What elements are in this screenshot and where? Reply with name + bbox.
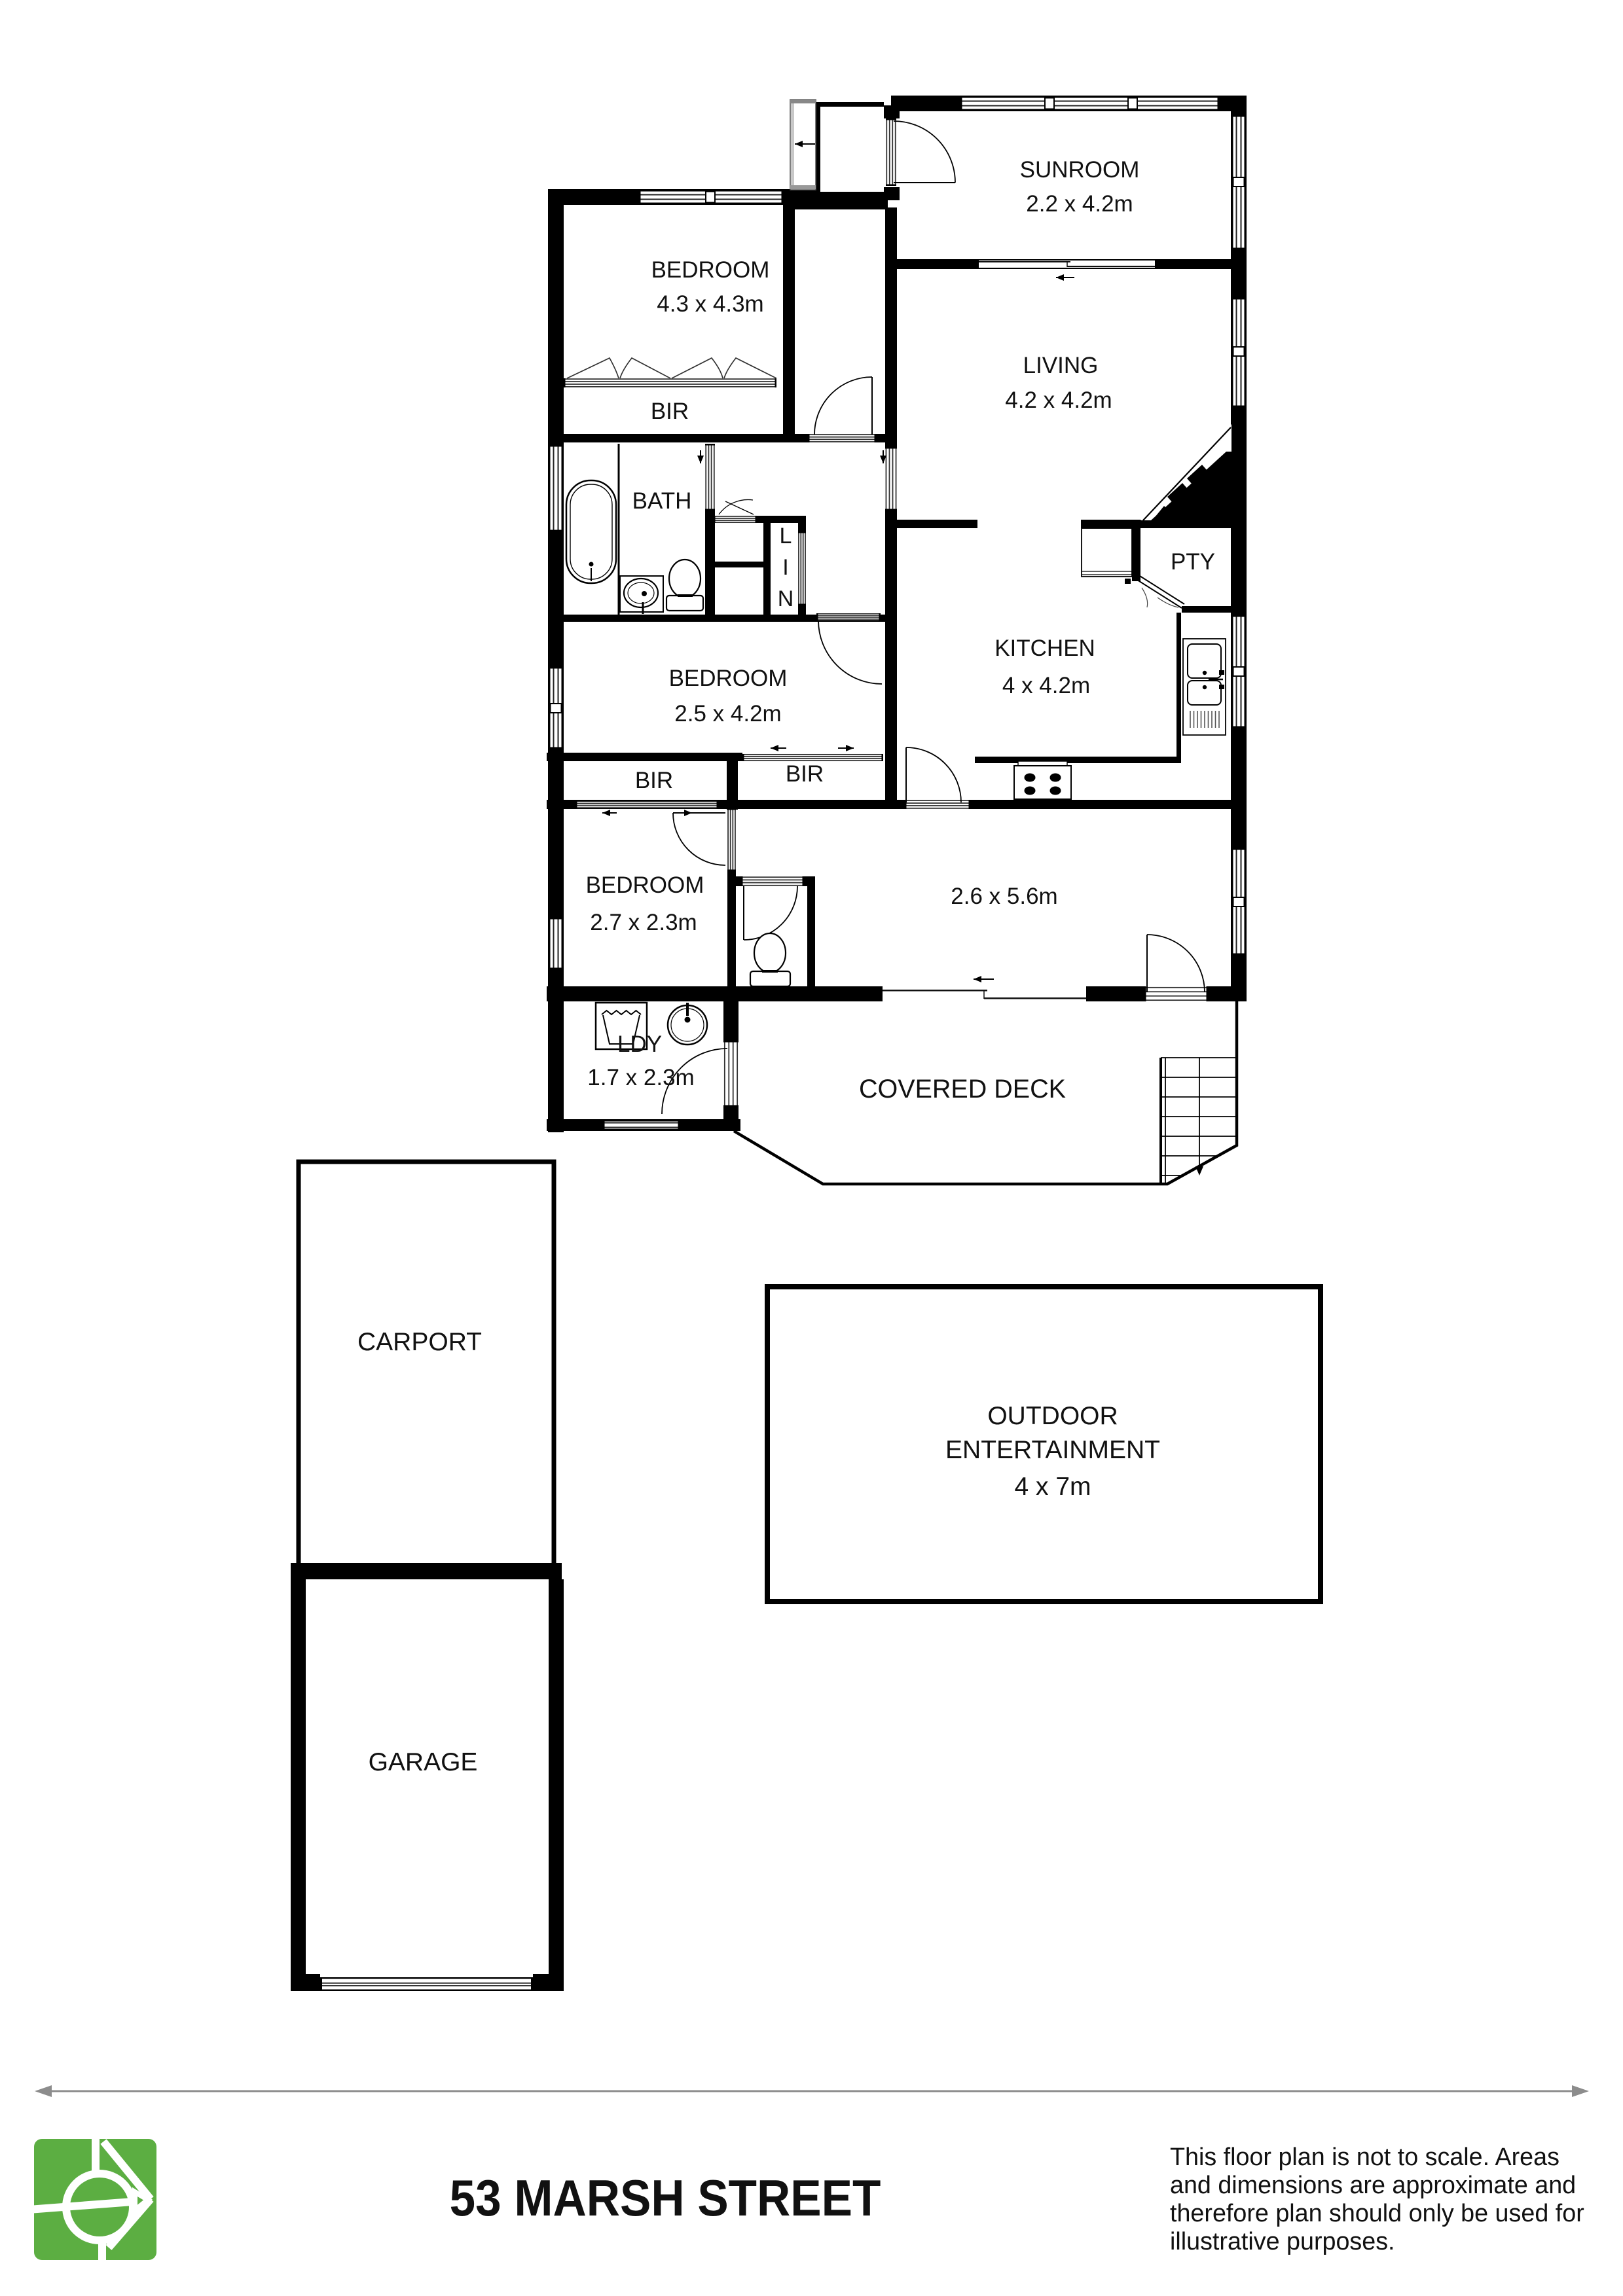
svg-text:LIVING: LIVING	[1023, 353, 1099, 378]
svg-text:2.2 x 4.2m: 2.2 x 4.2m	[1026, 191, 1133, 217]
svg-text:BEDROOM: BEDROOM	[669, 666, 788, 691]
svg-text:BEDROOM: BEDROOM	[586, 872, 704, 898]
svg-text:OUTDOOR: OUTDOOR	[987, 1402, 1118, 1430]
svg-text:This floor plan is not to scal: This floor plan is not to scale. Areas	[1170, 2143, 1559, 2170]
svg-text:therefore plan should only be: therefore plan should only be used for	[1170, 2199, 1584, 2227]
svg-text:4 x 4.2m: 4 x 4.2m	[1002, 673, 1090, 698]
svg-text:1.7 x 2.3m: 1.7 x 2.3m	[587, 1065, 694, 1090]
svg-text:CARPORT: CARPORT	[357, 1328, 482, 1356]
svg-text:LDY: LDY	[617, 1031, 662, 1057]
svg-text:illustrative purposes.: illustrative purposes.	[1170, 2227, 1395, 2255]
svg-text:GARAGE: GARAGE	[369, 1748, 478, 1776]
svg-text:2.7 x 2.3m: 2.7 x 2.3m	[590, 910, 697, 935]
svg-text:BEDROOM: BEDROOM	[651, 257, 770, 283]
svg-text:and dimensions are approximate: and dimensions are approximate and	[1170, 2171, 1576, 2198]
svg-text:I: I	[782, 555, 788, 580]
svg-text:ENTERTAINMENT: ENTERTAINMENT	[945, 1436, 1160, 1464]
svg-text:KITCHEN: KITCHEN	[994, 636, 1095, 661]
svg-text:SUNROOM: SUNROOM	[1020, 157, 1140, 183]
svg-text:4.3 x 4.3m: 4.3 x 4.3m	[657, 291, 763, 317]
svg-text:2.5 x 4.2m: 2.5 x 4.2m	[674, 701, 781, 726]
svg-text:COVERED DECK: COVERED DECK	[859, 1075, 1066, 1103]
svg-text:4.2 x 4.2m: 4.2 x 4.2m	[1005, 387, 1112, 413]
svg-text:53 MARSH STREET: 53 MARSH STREET	[450, 2169, 881, 2227]
svg-text:N: N	[778, 586, 794, 611]
svg-text:BIR: BIR	[786, 761, 824, 787]
svg-text:BIR: BIR	[635, 768, 673, 793]
svg-text:PTY: PTY	[1171, 549, 1215, 575]
svg-text:L: L	[780, 524, 792, 548]
svg-text:BATH: BATH	[632, 488, 692, 514]
svg-text:4 x 7m: 4 x 7m	[1014, 1473, 1091, 1501]
svg-text:2.6 x 5.6m: 2.6 x 5.6m	[951, 884, 1057, 909]
svg-text:BIR: BIR	[651, 399, 689, 424]
